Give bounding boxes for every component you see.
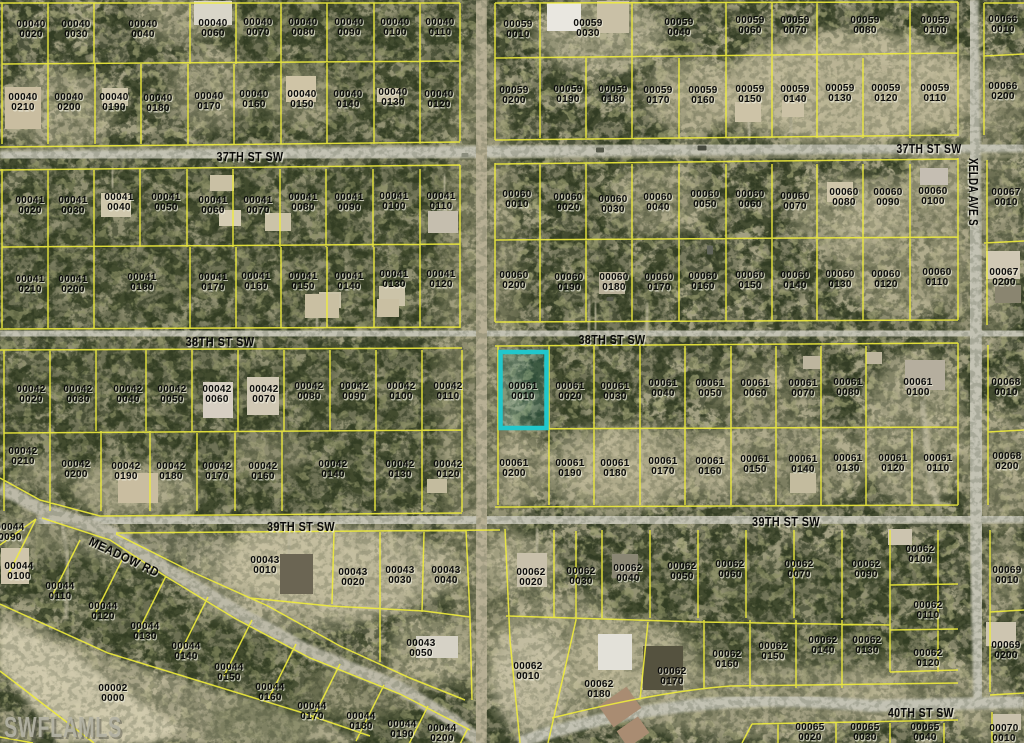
svg-text:SWFLAMLS: SWFLAMLS (4, 712, 122, 743)
svg-text:000400030: 000400030 (61, 19, 90, 40)
svg-text:000420040: 000420040 (113, 384, 142, 405)
svg-text:000660010: 000660010 (988, 14, 1017, 35)
svg-text:000440150: 000440150 (214, 662, 243, 683)
svg-text:000400210: 000400210 (8, 92, 37, 113)
svg-text:000400190: 000400190 (99, 92, 128, 113)
svg-text:000410090: 000410090 (334, 192, 363, 213)
svg-text:000620050: 000620050 (667, 561, 696, 582)
svg-text:000600170: 000600170 (644, 272, 673, 293)
svg-text:000670010: 000670010 (991, 187, 1020, 208)
svg-text:000610140: 000610140 (788, 454, 817, 475)
svg-text:000440200: 000440200 (427, 723, 456, 743)
svg-text:000400140: 000400140 (333, 89, 362, 110)
svg-text:000620110: 000620110 (913, 600, 942, 621)
svg-text:000400160: 000400160 (239, 89, 268, 110)
svg-text:000420020: 000420020 (16, 384, 45, 405)
svg-text:000590060: 000590060 (735, 15, 764, 36)
svg-text:000410180: 000410180 (127, 272, 156, 293)
svg-text:000690200: 000690200 (991, 640, 1020, 661)
svg-text:000440170: 000440170 (297, 701, 326, 722)
svg-text:000410060: 000410060 (198, 195, 227, 216)
svg-text:000620070: 000620070 (784, 559, 813, 580)
svg-text:000600130: 000600130 (825, 269, 854, 290)
svg-text:000400040: 000400040 (128, 19, 157, 40)
svg-text:000590100: 000590100 (920, 15, 949, 36)
svg-text:000410120: 000410120 (426, 269, 455, 290)
svg-text:000610060: 000610060 (740, 378, 769, 399)
svg-text:000400090: 000400090 (334, 17, 363, 38)
svg-text:000410020: 000410020 (15, 195, 44, 216)
svg-text:000590180: 000590180 (598, 84, 627, 105)
svg-text:000600180: 000600180 (599, 272, 628, 293)
svg-text:000590080: 000590080 (850, 15, 879, 36)
svg-text:000430020: 000430020 (338, 567, 367, 588)
svg-text:000400070: 000400070 (243, 17, 272, 38)
svg-text:000590070: 000590070 (780, 15, 809, 36)
svg-text:000020000: 000020000 (98, 683, 127, 704)
svg-text:000610100: 000610100 (903, 377, 932, 398)
svg-text:000420050: 000420050 (157, 384, 186, 405)
svg-text:000700010: 000700010 (989, 723, 1018, 743)
svg-text:000670200: 000670200 (989, 267, 1018, 288)
svg-text:000600200: 000600200 (499, 270, 528, 291)
svg-text:000430030: 000430030 (385, 565, 414, 586)
svg-text:000600090: 000600090 (873, 187, 902, 208)
svg-text:000420210: 000420210 (8, 446, 37, 467)
svg-text:000590110: 000590110 (920, 83, 949, 104)
svg-text:000600010: 000600010 (502, 189, 531, 210)
svg-text:000660200: 000660200 (988, 81, 1017, 102)
svg-text:000620120: 000620120 (913, 648, 942, 669)
svg-text:000440180: 000440180 (346, 711, 375, 732)
svg-text:000620160: 000620160 (712, 649, 741, 670)
svg-text:000610050: 000610050 (695, 378, 724, 399)
svg-text:000440090: 000440090 (0, 522, 25, 543)
svg-text:000600050: 000600050 (690, 189, 719, 210)
svg-text:000610160: 000610160 (695, 456, 724, 477)
svg-text:000590010: 000590010 (503, 19, 532, 40)
svg-text:000620020: 000620020 (516, 567, 545, 588)
svg-text:000420070: 000420070 (249, 384, 278, 405)
svg-text:000600150: 000600150 (735, 270, 764, 291)
svg-text:000410130: 000410130 (379, 269, 408, 290)
svg-text:000590140: 000590140 (780, 84, 809, 105)
svg-text:000590190: 000590190 (553, 84, 582, 105)
svg-text:000610010: 000610010 (508, 381, 537, 402)
svg-text:000440130: 000440130 (130, 621, 159, 642)
svg-text:000600020: 000600020 (553, 192, 582, 213)
svg-text:000590160: 000590160 (688, 85, 717, 106)
svg-text:000420140: 000420140 (318, 459, 347, 480)
svg-text:38TH ST SW: 38TH ST SW (579, 333, 646, 347)
svg-text:000610020: 000610020 (555, 381, 584, 402)
svg-text:000600100: 000600100 (918, 186, 947, 207)
svg-text:000610200: 000610200 (499, 458, 528, 479)
svg-text:000420100: 000420100 (386, 381, 415, 402)
svg-text:000610150: 000610150 (740, 454, 769, 475)
svg-text:000610170: 000610170 (648, 456, 677, 477)
svg-text:000620150: 000620150 (758, 641, 787, 662)
svg-text:000650040: 000650040 (910, 722, 939, 743)
svg-text:000590130: 000590130 (825, 83, 854, 104)
svg-text:000410040: 000410040 (104, 192, 133, 213)
svg-text:37TH ST SW: 37TH ST SW (217, 150, 284, 164)
svg-text:000420200: 000420200 (61, 459, 90, 480)
svg-text:000410160: 000410160 (241, 271, 270, 292)
svg-text:38TH ST SW: 38TH ST SW (186, 335, 255, 349)
svg-text:000620130: 000620130 (852, 635, 881, 656)
svg-text:000590040: 000590040 (664, 17, 693, 38)
svg-text:000680010: 000680010 (991, 377, 1020, 398)
svg-text:000420060: 000420060 (202, 384, 231, 405)
svg-text:000610030: 000610030 (600, 381, 629, 402)
svg-text:000420090: 000420090 (339, 381, 368, 402)
svg-text:000410100: 000410100 (379, 191, 408, 212)
svg-text:000410070: 000410070 (243, 195, 272, 216)
svg-text:000590200: 000590200 (499, 85, 528, 106)
svg-text:000410210: 000410210 (15, 274, 44, 295)
svg-text:000610040: 000610040 (648, 378, 677, 399)
svg-text:000400180: 000400180 (143, 93, 172, 114)
svg-text:000410150: 000410150 (288, 271, 317, 292)
svg-text:000680200: 000680200 (992, 451, 1021, 472)
svg-text:37TH ST SW: 37TH ST SW (897, 142, 962, 156)
svg-text:000610130: 000610130 (833, 453, 862, 474)
svg-text:000410030: 000410030 (58, 195, 87, 216)
svg-text:000620100: 000620100 (905, 544, 934, 565)
svg-text:000420160: 000420160 (248, 461, 277, 482)
svg-text:000600030: 000600030 (598, 194, 627, 215)
svg-text:000600070: 000600070 (780, 191, 809, 212)
svg-text:000410050: 000410050 (151, 192, 180, 213)
svg-text:000440140: 000440140 (171, 641, 200, 662)
svg-text:000440100: 000440100 (4, 561, 33, 582)
svg-text:000420180: 000420180 (156, 461, 185, 482)
svg-text:000610080: 000610080 (833, 377, 862, 398)
svg-text:000410140: 000410140 (334, 271, 363, 292)
svg-text:39TH ST SW: 39TH ST SW (752, 515, 820, 529)
svg-text:000650030: 000650030 (850, 722, 879, 743)
svg-text:000420190: 000420190 (111, 461, 140, 482)
svg-text:XELDA AVE S: XELDA AVE S (966, 158, 980, 226)
svg-text:000400110: 000400110 (425, 17, 454, 38)
svg-text:000400060: 000400060 (198, 18, 227, 39)
svg-text:000400170: 000400170 (194, 91, 223, 112)
svg-text:000420080: 000420080 (294, 381, 323, 402)
svg-text:000620140: 000620140 (808, 635, 837, 656)
svg-text:000440190: 000440190 (387, 719, 416, 740)
svg-text:000610190: 000610190 (555, 458, 584, 479)
svg-text:000620180: 000620180 (584, 679, 613, 700)
svg-text:000400130: 000400130 (378, 87, 407, 108)
svg-text:000400100: 000400100 (380, 17, 409, 38)
svg-text:000590030: 000590030 (573, 18, 602, 39)
svg-text:000420130: 000420130 (385, 459, 414, 480)
svg-text:000400120: 000400120 (424, 89, 453, 110)
svg-text:000620040: 000620040 (613, 563, 642, 584)
svg-text:000620170: 000620170 (657, 666, 686, 687)
svg-text:000610180: 000610180 (600, 458, 629, 479)
svg-text:000400080: 000400080 (288, 17, 317, 38)
svg-text:000420030: 000420030 (63, 384, 92, 405)
svg-text:000590170: 000590170 (643, 85, 672, 106)
svg-text:000690010: 000690010 (992, 565, 1021, 586)
svg-text:000600160: 000600160 (688, 271, 717, 292)
svg-text:000590120: 000590120 (871, 83, 900, 104)
svg-text:000430050: 000430050 (406, 638, 435, 659)
svg-text:000600060: 000600060 (735, 189, 764, 210)
svg-text:000620030: 000620030 (566, 566, 595, 587)
svg-text:000410170: 000410170 (198, 272, 227, 293)
svg-text:000440120: 000440120 (88, 601, 117, 622)
svg-text:000430010: 000430010 (250, 555, 279, 576)
svg-text:000440160: 000440160 (255, 682, 284, 703)
svg-text:000400150: 000400150 (287, 89, 316, 110)
svg-text:000600040: 000600040 (643, 192, 672, 213)
svg-text:000620090: 000620090 (851, 559, 880, 580)
svg-text:000400200: 000400200 (54, 92, 83, 113)
svg-text:000590150: 000590150 (735, 84, 764, 105)
svg-text:000420120: 000420120 (433, 459, 462, 480)
svg-text:39TH ST SW: 39TH ST SW (267, 520, 335, 534)
svg-text:000420110: 000420110 (433, 381, 462, 402)
svg-text:000610120: 000610120 (878, 453, 907, 474)
svg-text:000430040: 000430040 (431, 565, 460, 586)
svg-text:000600140: 000600140 (780, 270, 809, 291)
svg-text:000400020: 000400020 (16, 19, 45, 40)
svg-text:000610110: 000610110 (923, 453, 952, 474)
svg-text:000420170: 000420170 (202, 461, 231, 482)
svg-text:000600120: 000600120 (871, 269, 900, 290)
svg-text:000620060: 000620060 (715, 559, 744, 580)
svg-text:40TH ST SW: 40TH ST SW (888, 706, 954, 720)
svg-text:000440110: 000440110 (45, 581, 74, 602)
svg-text:000600110: 000600110 (922, 267, 951, 288)
svg-text:000620010: 000620010 (513, 661, 542, 682)
svg-text:000650020: 000650020 (795, 722, 824, 743)
svg-text:000600080: 000600080 (829, 187, 858, 208)
svg-text:000600190: 000600190 (554, 272, 583, 293)
svg-text:000410110: 000410110 (426, 191, 455, 212)
svg-text:000610070: 000610070 (788, 378, 817, 399)
svg-text:000410200: 000410200 (58, 274, 87, 295)
svg-text:000410080: 000410080 (288, 192, 317, 213)
